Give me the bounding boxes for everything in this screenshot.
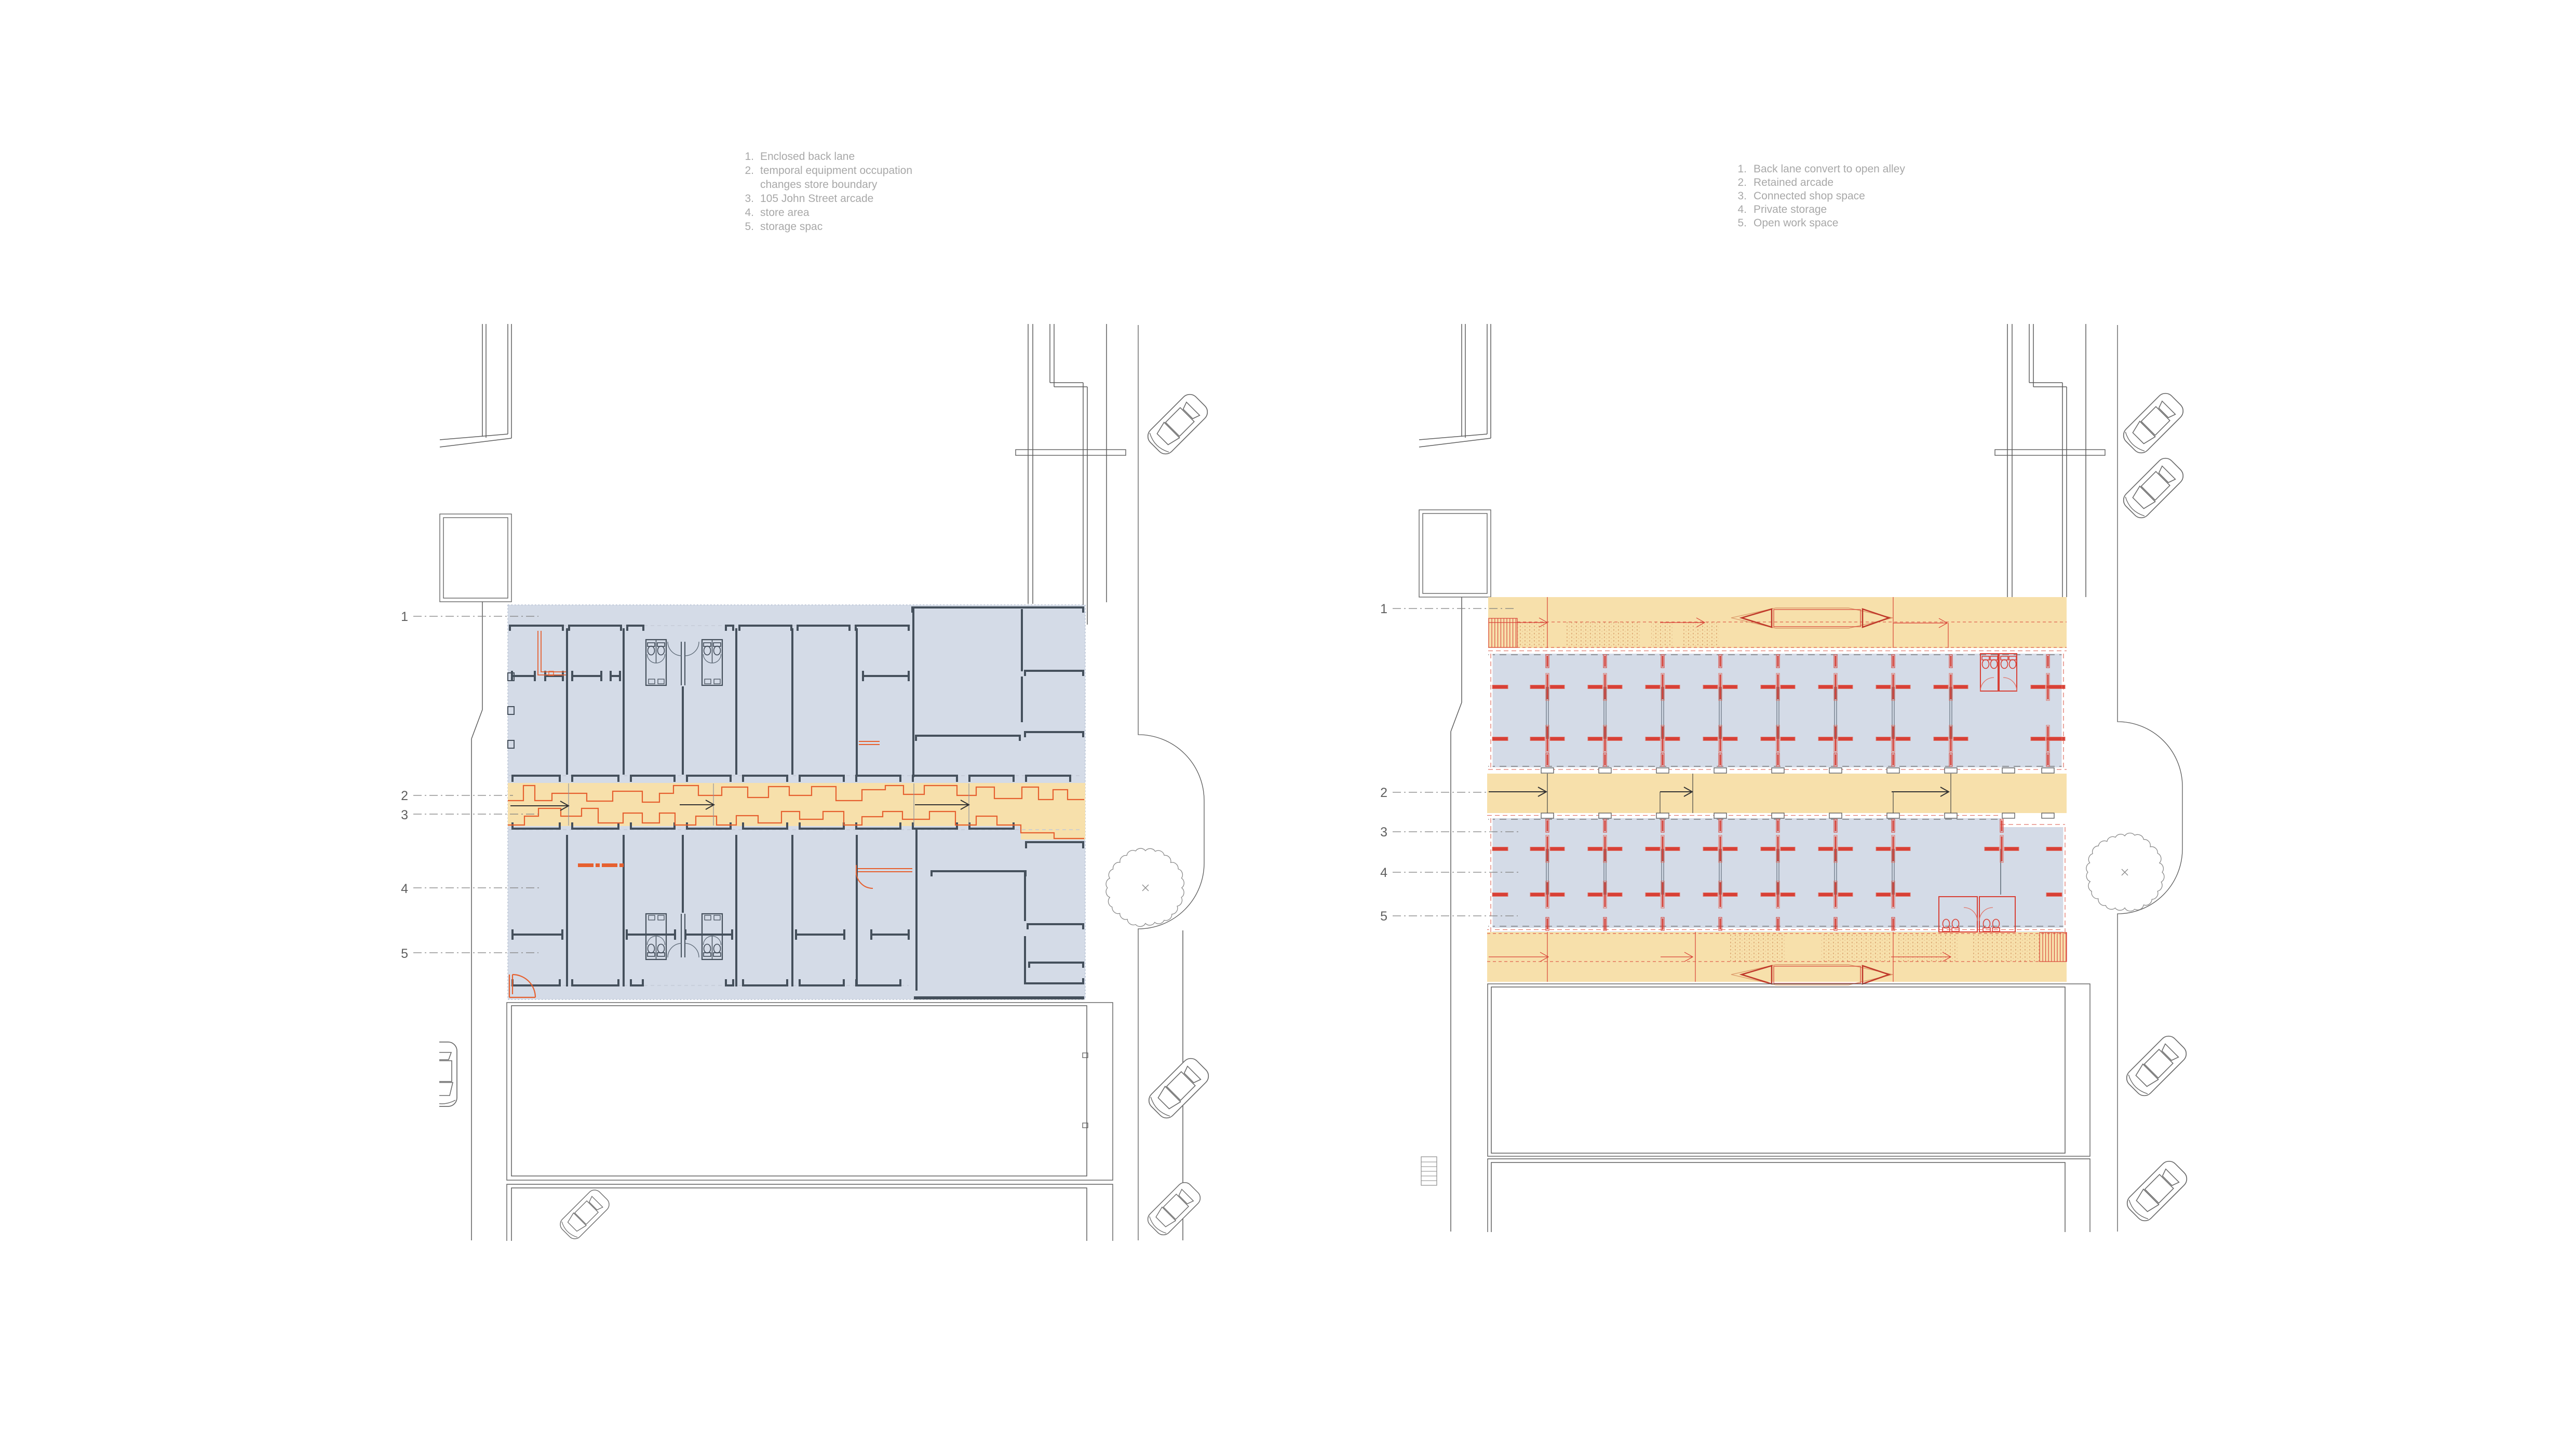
svg-text:storage spac: storage spac bbox=[760, 221, 822, 233]
svg-text:2.: 2. bbox=[1737, 177, 1747, 188]
svg-text:1.: 1. bbox=[1737, 163, 1747, 175]
svg-text:4: 4 bbox=[1380, 866, 1387, 880]
svg-text:105 John Street arcade: 105 John Street arcade bbox=[760, 193, 873, 205]
svg-text:2.: 2. bbox=[745, 165, 754, 177]
svg-text:1: 1 bbox=[1380, 602, 1387, 616]
svg-text:4.: 4. bbox=[745, 207, 754, 219]
svg-text:Retained arcade: Retained arcade bbox=[1754, 177, 1833, 188]
svg-text:Back lane convert to open alle: Back lane convert to open alley bbox=[1754, 163, 1905, 175]
svg-text:store area: store area bbox=[760, 207, 810, 219]
svg-text:1: 1 bbox=[401, 610, 408, 624]
svg-text:temporal equipment occupation: temporal equipment occupation bbox=[760, 165, 912, 177]
svg-text:Connected shop space: Connected shop space bbox=[1754, 190, 1865, 202]
svg-text:Private storage: Private storage bbox=[1754, 204, 1827, 215]
svg-text:Open work space: Open work space bbox=[1754, 217, 1838, 229]
svg-text:5: 5 bbox=[1380, 909, 1387, 924]
svg-text:Enclosed back lane: Enclosed back lane bbox=[760, 151, 855, 163]
svg-text:changes store boundary: changes store boundary bbox=[760, 179, 878, 191]
svg-text:3: 3 bbox=[1380, 825, 1387, 840]
svg-text:1.: 1. bbox=[745, 151, 754, 163]
svg-text:4.: 4. bbox=[1737, 204, 1747, 215]
svg-text:4: 4 bbox=[401, 882, 408, 896]
svg-text:5.: 5. bbox=[745, 221, 754, 233]
svg-text:5.: 5. bbox=[1737, 217, 1747, 229]
svg-text:3: 3 bbox=[401, 808, 408, 822]
svg-text:2: 2 bbox=[401, 789, 408, 803]
svg-text:2: 2 bbox=[1380, 786, 1387, 800]
svg-text:3.: 3. bbox=[1737, 190, 1747, 202]
svg-text:3.: 3. bbox=[745, 193, 754, 205]
svg-text:5: 5 bbox=[401, 946, 408, 961]
